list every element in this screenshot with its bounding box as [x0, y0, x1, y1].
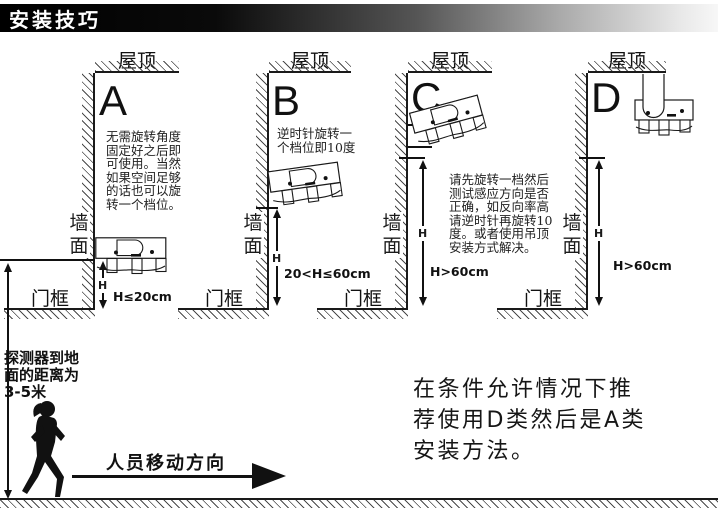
height-range-label: H>60cm [613, 258, 672, 273]
h-label: H [417, 226, 428, 241]
height-range-label: H>60cm [430, 264, 489, 279]
roof-line [269, 61, 351, 73]
wall-line [82, 73, 95, 308]
roof-line [95, 61, 179, 73]
panel-letter: D [591, 77, 621, 119]
door-frame-line [178, 308, 269, 319]
height-dimension-arrow: H [97, 261, 109, 309]
wall-line [256, 73, 269, 308]
sensor-device-illustration [634, 74, 696, 140]
roof-line [408, 61, 492, 73]
door-frame-label: 门框 [5, 284, 95, 311]
panel-b-note: 逆时针旋转一 个档位即10度 [277, 127, 355, 154]
measure-tick [399, 157, 425, 159]
installation-tips-diagram: 安装技巧 屋顶 A 无需旋转角度 固定好之后即 可使用。当然 如果空间足够 的话… [0, 0, 718, 509]
detector-distance-text: 探测器到地 面的距离为 3-5米 [4, 350, 79, 401]
walking-person-icon [14, 398, 78, 502]
wall-line [395, 73, 408, 308]
door-frame-line [497, 308, 588, 319]
wall-surface-label: 墙 面 [381, 212, 403, 258]
height-dimension-arrow: H [271, 209, 283, 306]
measure-tick [579, 157, 605, 159]
page-title: 安装技巧 [0, 4, 101, 33]
recommendation-text: 在条件允许情况下推 荐使用D类然后是A类 安装方法。 [413, 374, 646, 467]
ground-line [0, 498, 718, 508]
door-frame-label: 门框 [179, 284, 269, 311]
h-label: H [593, 226, 604, 241]
movement-direction-label: 人员移动方向 [106, 449, 226, 475]
title-banner: 安装技巧 [0, 4, 718, 32]
h-label: H [271, 251, 282, 266]
sensor-device-illustration [267, 161, 344, 213]
door-frame-label: 门框 [498, 284, 588, 311]
panel-letter: B [272, 80, 300, 122]
wall-line [575, 73, 588, 308]
wall-surface-label: 墙 面 [242, 212, 264, 258]
panel-c-note: 请先旋转一档然后 测试感应方向是否 正确，如反向率高 请逆时针再旋转10 度。或… [449, 173, 552, 254]
movement-direction-arrow [72, 475, 256, 478]
panel-a-note: 无需旋转角度 固定好之后即 可使用。当然 如果空间足够 的话也可以旋 转一个档位… [106, 130, 181, 211]
height-dimension-arrow: H [593, 160, 605, 306]
reference-line [0, 259, 95, 261]
height-range-label: 20<H≤60cm [284, 266, 371, 281]
door-frame-label: 门框 [318, 284, 408, 311]
wall-surface-label: 墙 面 [561, 212, 583, 258]
height-range-label: H≤20cm [113, 289, 172, 304]
panel-letter: A [99, 80, 127, 122]
h-label: H [97, 278, 108, 293]
roof-line [588, 61, 666, 73]
door-frame-line [317, 308, 408, 319]
wall-surface-label: 墙 面 [68, 212, 90, 258]
height-dimension-arrow: H [417, 160, 429, 306]
movement-arrow-head-icon [252, 463, 286, 489]
door-frame-line [4, 308, 95, 319]
